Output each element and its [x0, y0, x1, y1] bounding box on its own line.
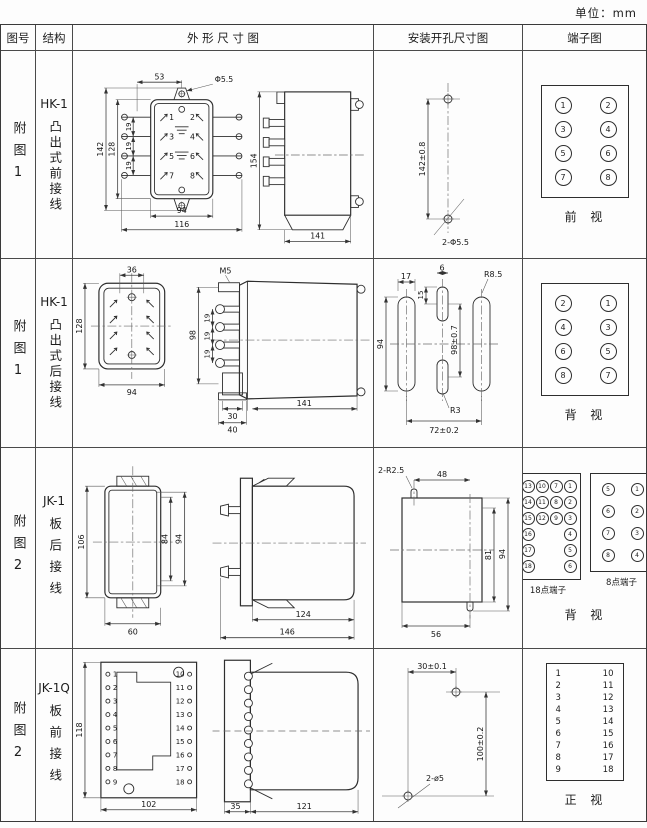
pin-number: 16 [176, 751, 185, 759]
pin-number: 15 [176, 738, 185, 746]
terminal-number: 15 [523, 512, 535, 525]
terminal-number: 1 [556, 669, 561, 679]
terminal-number: 10 [603, 669, 614, 679]
structure-row2: HK-1 凸出式后接线 [36, 259, 73, 448]
terminal-number: 7 [550, 480, 563, 493]
dim-15: 15 [417, 290, 425, 299]
terminal-cell-row2: 21436587 背 视 [523, 259, 646, 448]
terminal-diagram-8pt: 51627384 [590, 473, 647, 572]
dim-6: 6 [439, 263, 444, 272]
pin-number: 5 [113, 725, 117, 733]
radius-callout-small: R3 [450, 406, 461, 415]
wiring-label: 板后接线 [48, 517, 61, 603]
mounting-drawing-jk1: 2-R2.5 48 81 94 56 [376, 450, 521, 647]
dim-98: 98 [189, 329, 198, 339]
dim-19: 19 [125, 161, 133, 170]
model-label: HK-1 [40, 295, 68, 309]
mounting-cell-row2: 17 6 15 94 98±0.7 R8.5 R3 72±0.2 [374, 259, 523, 448]
pin-number: 4 [113, 711, 118, 719]
terminal-number: 5 [556, 717, 561, 727]
dim-19: 19 [204, 313, 212, 322]
pin-number: 6 [190, 151, 195, 160]
header-mounting: 安装开孔尺寸图 [374, 25, 523, 51]
terminal-18pt-label: 18点端子 [523, 584, 581, 596]
terminal-number: 11 [603, 681, 614, 691]
pin-number: 9 [113, 778, 117, 786]
terminal-number: 8 [602, 549, 615, 562]
terminal-left-column: 123456789 [556, 669, 561, 775]
pin-number: 4 [190, 132, 195, 141]
terminal-number: 9 [556, 765, 561, 775]
terminal-number: 4 [631, 549, 644, 562]
dim-141: 141 [310, 231, 325, 240]
terminal-number: 3 [555, 121, 572, 138]
pin-number: 13 [176, 711, 185, 719]
terminal-number: 8 [600, 169, 617, 186]
outline-drawing-jk1q: 1 2 3 4 5 6 7 8 9 10 11 12 13 14 15 16 1… [73, 650, 373, 820]
outline-drawing-hk1-rear: 36 128 94 M5 [73, 261, 373, 446]
terminal-number: 2 [600, 97, 617, 114]
view-label: 背 视 [565, 606, 605, 623]
pin-number: 2 [190, 113, 195, 122]
dim-128: 128 [108, 141, 117, 156]
dim-118: 118 [75, 722, 84, 737]
screw-callout: M5 [220, 266, 232, 275]
terminal-diagram-8pt: 21436587 [541, 283, 629, 396]
dim-56: 56 [430, 630, 440, 639]
dim-128: 128 [75, 318, 84, 333]
fig-no-label: 附图1 [12, 121, 25, 189]
terminal-right-column: 101112131415161718 [603, 669, 614, 775]
wiring-label: 板前接线 [48, 704, 61, 790]
terminal-number: 6 [602, 505, 615, 518]
dim-ear-hole: Φ5.5 [215, 75, 233, 84]
mounting-drawing-hk1-front: 142±0.8 2-Φ5.5 [376, 55, 521, 255]
dim-94: 94 [376, 338, 385, 348]
terminal-number: 5 [564, 544, 577, 557]
dim-19: 19 [204, 331, 212, 340]
fig-no-label: 附图1 [12, 319, 25, 387]
terminal-number: 9 [550, 512, 563, 525]
structure-row1: HK-1 凸出式前接线 [36, 51, 73, 259]
model-label: HK-1 [40, 97, 68, 111]
dim-19: 19 [125, 122, 133, 131]
dim-30-tol: 30±0.1 [417, 662, 447, 671]
header-terminal: 端子图 [523, 25, 646, 51]
radius-callout-big: R8.5 [484, 270, 502, 279]
terminal-diagram-8pt: 12345678 [541, 85, 629, 198]
terminal-number: 3 [600, 319, 617, 336]
dim-30: 30 [227, 411, 237, 420]
terminal-number: 8 [555, 367, 572, 384]
terminal-number: 3 [564, 512, 577, 525]
pin-number: 8 [113, 765, 117, 773]
dim-60: 60 [128, 627, 138, 636]
terminal-number: 2 [564, 496, 577, 509]
dim-84: 84 [161, 533, 170, 543]
terminal-number: 11 [536, 496, 549, 509]
outline-drawing-hk1-front: 1 2 3 4 5 6 7 8 53 Φ5.5 142 128 [73, 55, 373, 255]
dim-94: 94 [127, 387, 137, 396]
pin-number: 18 [176, 778, 185, 786]
terminal-number: 18 [523, 560, 535, 573]
fig-no-row3: 附图2 [1, 448, 36, 649]
fig-no-row4: 附图2 [1, 649, 36, 821]
wiring-label: 凸出式后接线 [48, 318, 61, 411]
terminal-number: 15 [603, 729, 614, 739]
outline-cell-row4: 1 2 3 4 5 6 7 8 9 10 11 12 13 14 15 16 1… [73, 649, 374, 821]
terminal-number: 1 [600, 295, 617, 312]
view-label: 正 视 [565, 791, 605, 808]
dim-17: 17 [400, 272, 410, 281]
dim-94: 94 [177, 206, 187, 215]
terminal-number: 8 [550, 496, 563, 509]
terminal-cell-row3: 131071141182151293164175186 18点端子 516273… [523, 448, 646, 649]
terminal-number: 4 [556, 705, 561, 715]
terminal-number: 7 [600, 367, 617, 384]
header-structure: 结构 [36, 25, 73, 51]
spec-table: 图号 结构 外 形 尺 寸 图 安装开孔尺寸图 端子图 附图1 HK-1 凸出式… [0, 24, 647, 822]
dim-98-tol: 98±0.7 [450, 325, 459, 355]
mounting-drawing-jk1q: 30±0.1 100±0.2 2-ø5 [376, 650, 521, 820]
terminal-number: 7 [602, 527, 615, 540]
outline-drawing-jk1: 106 84 94 60 124 [73, 450, 373, 647]
dim-40: 40 [227, 425, 237, 434]
terminal-diagram-18pt: 131071141182151293164175186 [523, 473, 581, 580]
terminal-number: 16 [603, 741, 614, 751]
mounting-drawing-hk1-rear: 17 6 15 94 98±0.7 R8.5 R3 72±0.2 [376, 261, 521, 446]
pin-number: 1 [169, 113, 174, 122]
dim-hole-callout: 2-ø5 [426, 774, 444, 783]
terminal-number: 6 [556, 729, 561, 739]
dim-53: 53 [154, 72, 164, 81]
terminal-number: 7 [556, 741, 561, 751]
terminal-number: 17 [603, 753, 614, 763]
dim-142-tol: 142±0.8 [418, 141, 427, 176]
terminal-number: 18 [603, 765, 614, 775]
terminal-number: 6 [564, 560, 577, 573]
structure-row4: JK-1Q 板前接线 [36, 649, 73, 821]
terminal-number: 12 [536, 512, 549, 525]
outline-cell-row2: 36 128 94 M5 [73, 259, 374, 448]
dim-19: 19 [204, 349, 212, 358]
model-label: JK-1Q [38, 681, 70, 695]
pin-number: 3 [113, 698, 117, 706]
terminal-number: 1 [564, 480, 577, 493]
pin-number: 2 [113, 684, 117, 692]
unit-label: 单位：mm [575, 5, 637, 21]
outline-cell-row3: 106 84 94 60 124 [73, 448, 374, 649]
dim-121: 121 [297, 802, 312, 811]
view-label: 前 视 [565, 208, 605, 225]
dim-146: 146 [280, 627, 295, 636]
terminal-number: 4 [600, 121, 617, 138]
pin-number: 5 [169, 151, 174, 160]
terminal-diagram-18pt-list: 123456789 101112131415161718 [546, 663, 624, 781]
terminal-number: 2 [556, 681, 561, 691]
dim-35: 35 [230, 802, 240, 811]
dim-141: 141 [297, 398, 312, 407]
terminal-number: 1 [631, 483, 644, 496]
terminal-number: 13 [523, 480, 535, 493]
terminal-number: 3 [556, 693, 561, 703]
terminal-number: 1 [555, 97, 572, 114]
pin-number: 14 [176, 725, 185, 733]
dim-19: 19 [125, 141, 133, 150]
dim-hole-callout: 2-Φ5.5 [442, 238, 469, 247]
pin-number: 7 [169, 171, 174, 180]
dim-94: 94 [175, 533, 184, 543]
dim-94: 94 [498, 548, 507, 558]
terminal-number: 10 [536, 480, 549, 493]
terminal-cell-row1: 12345678 前 视 [523, 51, 646, 259]
fig-no-label: 附图2 [12, 514, 25, 582]
dim-48: 48 [436, 470, 446, 479]
fig-no-row1: 附图1 [1, 51, 36, 259]
terminal-number: 14 [523, 496, 535, 509]
terminal-number: 6 [600, 145, 617, 162]
fig-no-row2: 附图1 [1, 259, 36, 448]
terminal-number: 14 [603, 717, 614, 727]
pin-number: 7 [113, 751, 117, 759]
terminal-number: 2 [555, 295, 572, 312]
terminal-number: 6 [555, 343, 572, 360]
outline-cell-row1: 1 2 3 4 5 6 7 8 53 Φ5.5 142 128 [73, 51, 374, 259]
header-fig-no: 图号 [1, 25, 36, 51]
mounting-cell-row1: 142±0.8 2-Φ5.5 [374, 51, 523, 259]
dim-36: 36 [127, 265, 137, 274]
dim-106: 106 [77, 534, 86, 549]
terminal-number: 12 [603, 693, 614, 703]
pin-number: 6 [113, 738, 117, 746]
view-label: 背 视 [565, 406, 605, 423]
pin-number: 17 [176, 765, 185, 773]
terminal-number: 13 [603, 705, 614, 715]
pin-number: 8 [190, 171, 195, 180]
terminal-number: 5 [602, 483, 615, 496]
terminal-number: 3 [631, 527, 644, 540]
dim-124: 124 [296, 609, 311, 618]
terminal-number: 7 [555, 169, 572, 186]
spec-sheet-page: 单位：mm 图号 结构 外 形 尺 寸 图 安装开孔尺寸图 端子图 附图1 HK… [0, 0, 647, 828]
terminal-number: 5 [600, 343, 617, 360]
terminal-number: 17 [523, 544, 535, 557]
pin-number: 1 [113, 671, 117, 679]
wiring-label: 凸出式前接线 [48, 120, 61, 213]
model-label: JK-1 [43, 494, 65, 508]
pin-number: 3 [169, 132, 174, 141]
terminal-number: 4 [564, 528, 577, 541]
terminal-8pt-label: 8点端子 [590, 576, 647, 588]
fig-no-label: 附图2 [12, 701, 25, 769]
dim-102: 102 [141, 800, 156, 809]
header-outline: 外 形 尺 寸 图 [73, 25, 374, 51]
dim-116: 116 [174, 219, 189, 228]
pin-number: 12 [176, 698, 185, 706]
dim-span: 72±0.2 [429, 426, 459, 435]
dim-142: 142 [96, 141, 105, 156]
dim-100-tol: 100±0.2 [476, 727, 485, 762]
dim-154: 154 [249, 153, 258, 168]
radius-callout: 2-R2.5 [378, 466, 404, 475]
structure-row3: JK-1 板后接线 [36, 448, 73, 649]
terminal-number: 5 [555, 145, 572, 162]
terminal-number: 2 [631, 505, 644, 518]
terminal-number: 4 [555, 319, 572, 336]
terminal-number: 16 [523, 528, 535, 541]
mounting-cell-row4: 30±0.1 100±0.2 2-ø5 [374, 649, 523, 821]
terminal-cell-row4: 123456789 101112131415161718 正 视 [523, 649, 646, 821]
terminal-number: 8 [556, 753, 561, 763]
dim-81: 81 [484, 549, 493, 559]
pin-number: 10 [176, 671, 185, 679]
pin-number: 11 [176, 684, 185, 692]
mounting-cell-row3: 2-R2.5 48 81 94 56 [374, 448, 523, 649]
